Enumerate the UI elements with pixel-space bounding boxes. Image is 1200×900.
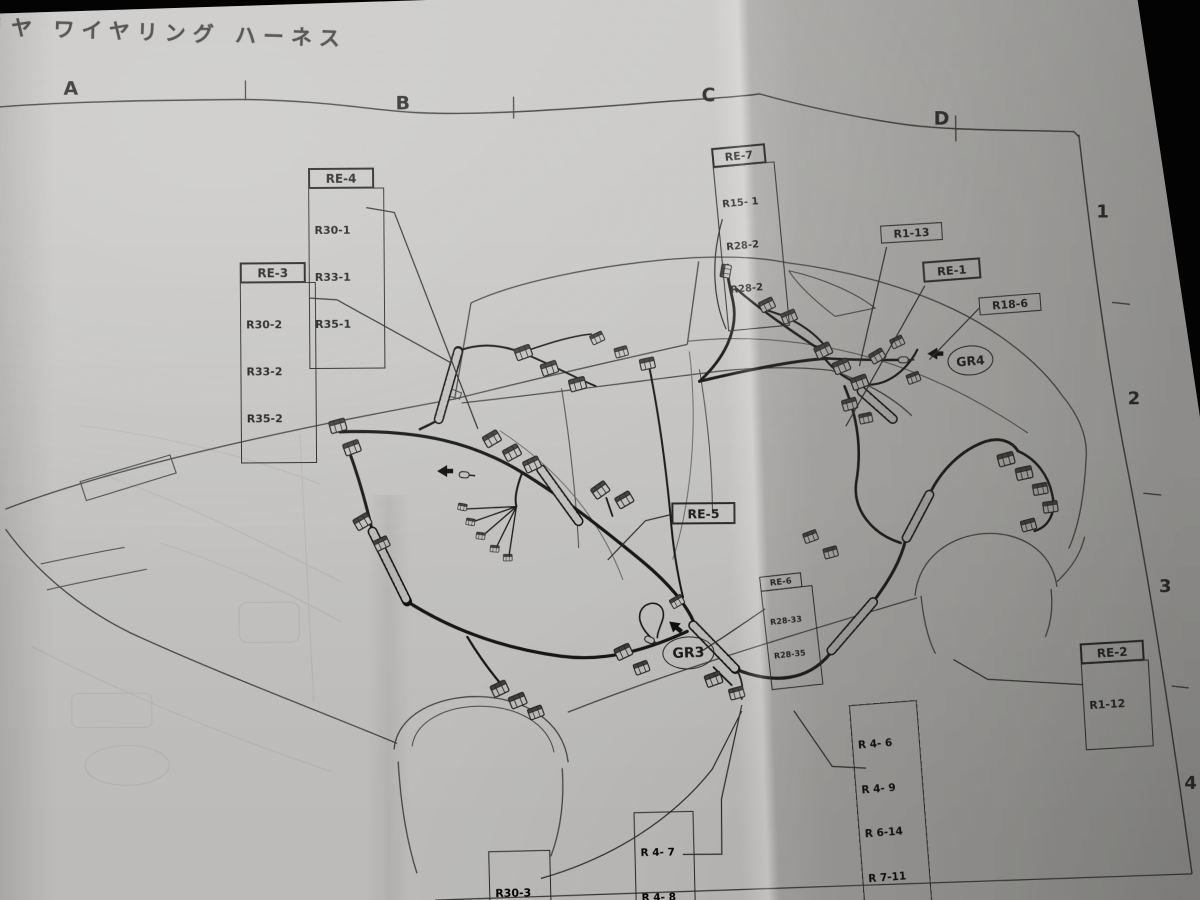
callout-re3: RE-3 R30-2 R33-2 R35-2 [240,262,317,463]
callout-r1-13: R1-13 [880,222,943,244]
grid-label-4: 4 [1184,773,1197,794]
list-line: R15- 1 [722,194,773,213]
callout-re6-list: R28-33 R28-35 [761,585,824,690]
callout-re5: RE-5 [671,502,735,524]
grid-label-3: 3 [1159,576,1172,597]
paper-page: A B C D 1 2 3 4 [0,0,1200,900]
list-line: R 4- 8 [641,889,689,900]
grid-label-a: A [63,78,78,100]
leader-lines [308,203,1084,880]
list-line: R28-2 [730,279,781,298]
callout-re1: RE-1 [922,257,981,282]
grid-labels: A B C D 1 2 3 4 [63,70,1197,802]
list-line: R28-2 [726,237,777,256]
callout-re4-list: R30-1 R33-1 R35-1 [308,188,385,369]
list-line: R35-2 [247,411,311,427]
callout-list-center: R 4- 7 R 4- 8 R 7-12 R 7-14 R12- 1 R18- … [633,811,696,900]
callout-re3-list: R30-2 R33-2 R35-2 [240,282,317,463]
callout-list-left: R30-3 R33-3 R33-4 [488,850,552,900]
list-line: R28-33 [770,612,811,628]
grid-label-2: 2 [1128,388,1141,409]
list-line: R35-1 [315,316,379,332]
list-line: R33-1 [315,270,379,286]
wiring-diagram-art: A B C D 1 2 3 4 [0,0,1200,900]
list-line: R 4- 6 [857,734,914,753]
grid-label-1: 1 [1096,201,1109,222]
car-outline [4,255,1090,877]
list-line: R28-35 [773,646,814,662]
callout-re4: RE-4 R30-1 R33-1 R35-1 [308,168,385,369]
list-line: R 7-11 [868,868,925,887]
callout-re4-header: RE-4 [308,168,374,189]
grid-label-c: C [701,84,715,106]
grid-label-d: D [934,108,950,130]
callout-re2: RE-2 R1-12 [1080,639,1154,750]
list-line: R1-12 [1089,695,1146,714]
grid-label-b: B [395,92,410,114]
list-line: R30-1 [314,223,378,239]
list-line: R30-3 [495,885,545,900]
list-line: R 4- 9 [861,779,918,798]
callout-re3-header: RE-3 [240,262,306,283]
list-line: R 6-14 [864,823,921,842]
photo-of-manual-page: A B C D 1 2 3 4 [0,0,1200,900]
list-line: R30-2 [246,317,310,333]
diagram-content: A B C D 1 2 3 4 [0,0,1200,900]
floor-arrow-icon [437,465,453,477]
list-line: R 4- 7 [640,845,688,861]
list-line: R33-2 [246,364,310,380]
callout-re2-list: R1-12 [1081,659,1154,750]
ghost-showthrough-lines [30,424,343,786]
